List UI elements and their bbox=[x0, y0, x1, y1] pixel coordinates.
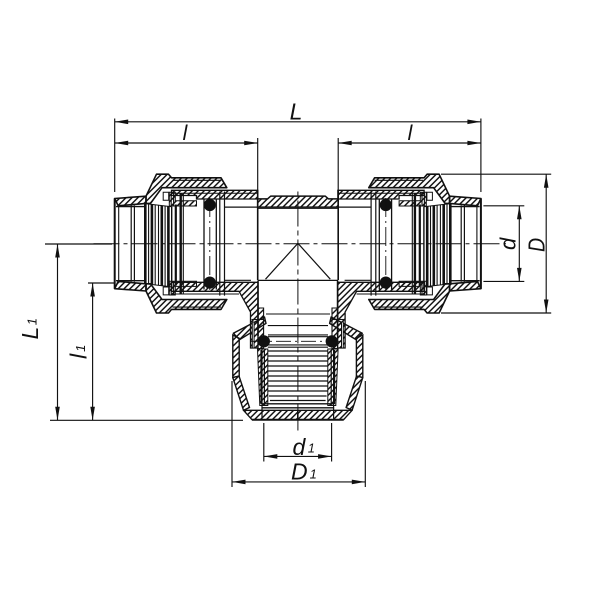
svg-text:D: D bbox=[524, 238, 550, 252]
svg-text:d: d bbox=[496, 237, 521, 250]
svg-text:L: L bbox=[290, 99, 303, 125]
